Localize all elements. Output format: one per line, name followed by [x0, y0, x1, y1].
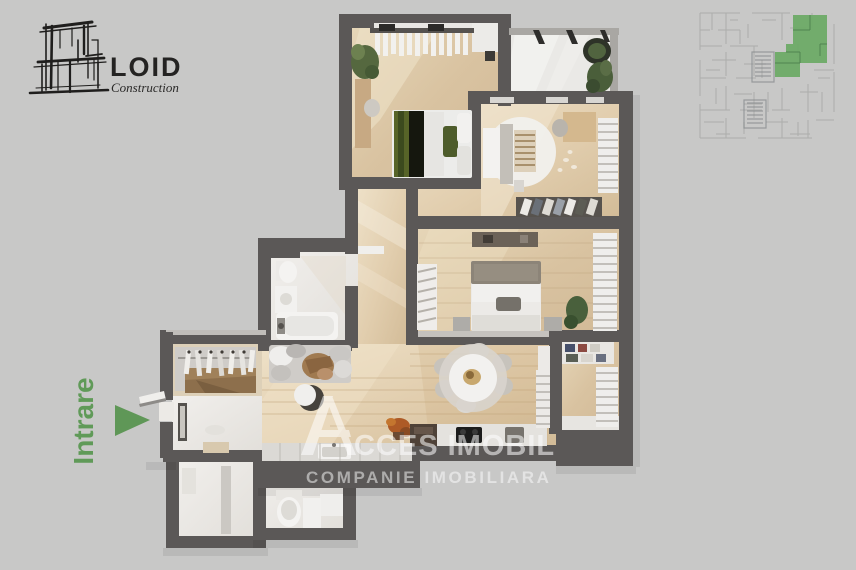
svg-text:CCES IMOBIL: CCES IMOBIL	[354, 430, 555, 462]
svg-text:COMPANIE IMOBILIARA: COMPANIE IMOBILIARA	[306, 468, 552, 487]
svg-text:Intrare: Intrare	[68, 377, 99, 464]
svg-text:Construction: Construction	[111, 80, 179, 95]
svg-text:LOID: LOID	[110, 52, 183, 82]
